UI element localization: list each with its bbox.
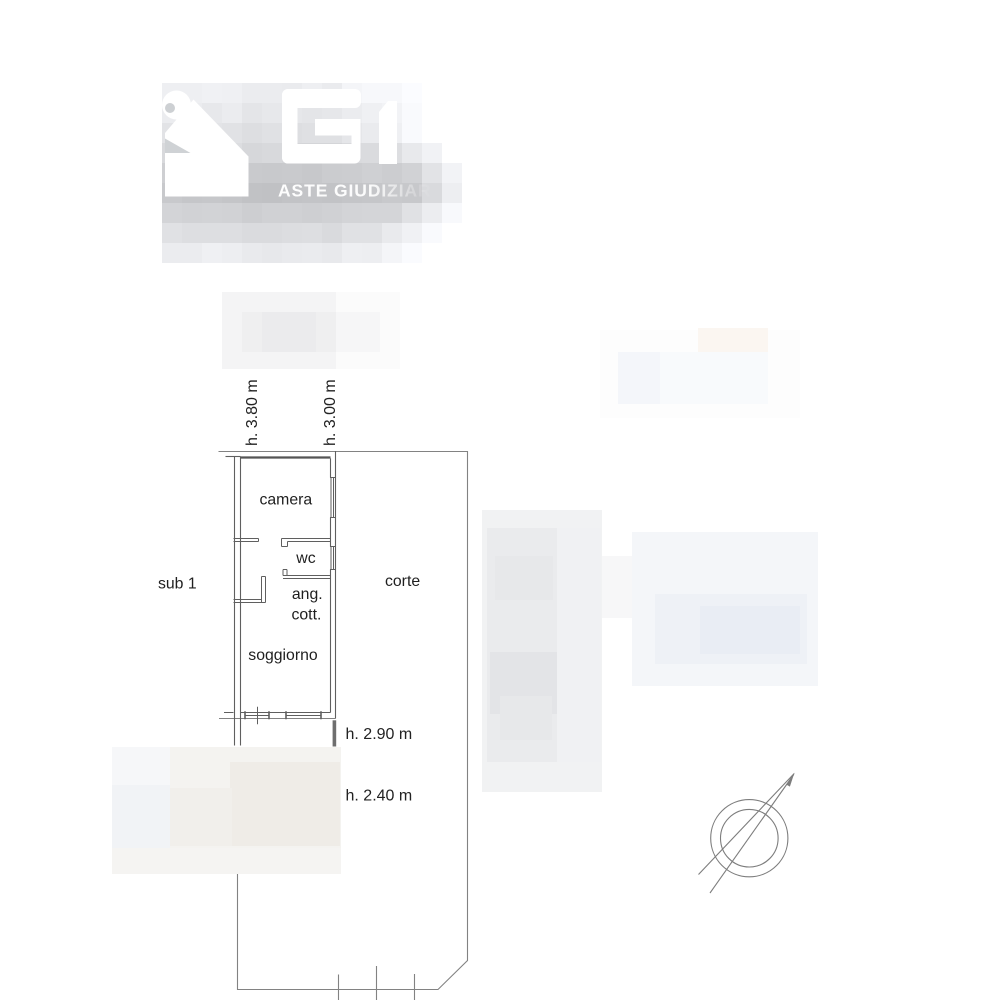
svg-text:cott.: cott.	[292, 607, 322, 624]
svg-text:h. 3.80 m: h. 3.80 m	[244, 379, 261, 446]
svg-text:soggiorno: soggiorno	[248, 647, 318, 664]
svg-text:corte: corte	[385, 573, 420, 590]
svg-text:h. 2.90 m: h. 2.90 m	[346, 726, 413, 743]
svg-text:camera: camera	[260, 492, 313, 509]
svg-text:ang.: ang.	[292, 586, 323, 603]
svg-text:sub 1: sub 1	[158, 576, 197, 593]
svg-text:h. 3.00 m: h. 3.00 m	[322, 379, 339, 446]
svg-text:ASTE GIUDIZIARIE: ASTE GIUDIZIARIE	[278, 181, 450, 201]
svg-text:h. 2.40 m: h. 2.40 m	[346, 788, 413, 805]
svg-text:wc: wc	[295, 550, 315, 567]
